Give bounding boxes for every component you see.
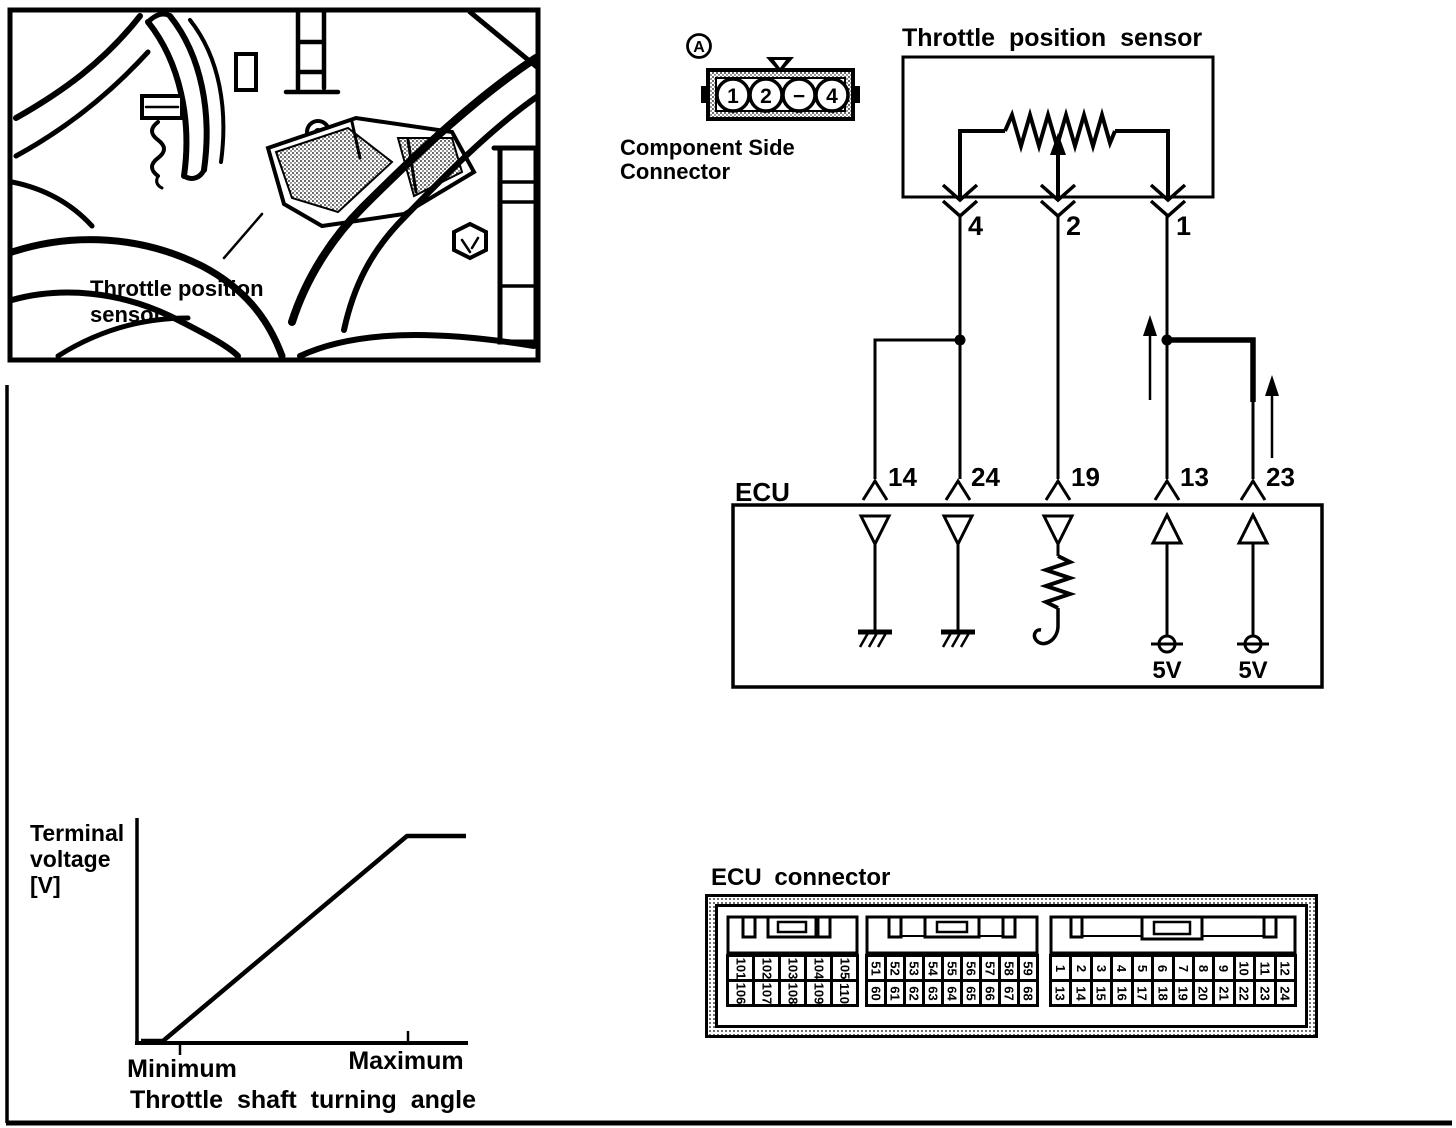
- sensor-schematic: Throttle position sensor 4 2 1: [902, 24, 1213, 241]
- ecu-box: [733, 505, 1322, 687]
- ecu-pin-23: 23: [1266, 462, 1295, 492]
- ecu-label: ECU: [735, 477, 790, 507]
- ecu-connector-inner: 101102103104105 106107108109110 51525354…: [715, 904, 1308, 1028]
- ecu-connector-title: ECU connector: [711, 864, 890, 892]
- internal-resistor: [1046, 556, 1070, 608]
- sensor-pin-4: 4: [968, 211, 983, 241]
- flow-arrow-icon-1: [1143, 315, 1157, 336]
- block-1-bottom-row: 106107108109110: [726, 979, 859, 1007]
- ecu-pin-19: 19: [1071, 462, 1100, 492]
- junction-dot-right: [1162, 335, 1173, 346]
- ecu-connector-pin-68: 68: [1017, 979, 1039, 1007]
- ecu-connector-pin-103: 103: [778, 954, 807, 982]
- ecu-connector-pin-24: 24: [1274, 979, 1297, 1007]
- ecu-pin-13: 13: [1180, 462, 1209, 492]
- photo-caption-line1: Throttle position: [90, 276, 264, 301]
- ecu-pin-24: 24: [971, 462, 1000, 492]
- y-label-line1: Terminal: [30, 820, 124, 846]
- x-tick-label-maximum: Maximum: [348, 1047, 463, 1075]
- ecu-io-triangles: [861, 515, 1267, 544]
- ecu-connector-pin-104: 104: [804, 954, 833, 982]
- input-triangle-19: [1044, 516, 1072, 544]
- ecu-connector-pin-108: 108: [778, 979, 807, 1007]
- pin-2: 2: [760, 85, 772, 108]
- block-2-bottom-row: 606162636465666768: [865, 979, 1039, 1007]
- block-3-bottom-row: 131415161718192021222324: [1049, 979, 1297, 1007]
- component-connector: A 1 2 − 4 Component Side Connector: [620, 35, 860, 185]
- pin-dash: −: [793, 85, 805, 108]
- sensor-pin-labels: 4 2 1: [968, 211, 1191, 241]
- ecu-connector-frame: 101102103104105 106107108109110 51525354…: [705, 894, 1318, 1038]
- ecu-connector-pin-59: 59: [1017, 954, 1039, 982]
- x-axis-title: Throttle shaft turning angle: [130, 1086, 476, 1114]
- ground-icon-14: [860, 633, 886, 647]
- x-tick-label-minimum: Minimum: [127, 1055, 237, 1083]
- block-1-top-row: 101102103104105: [726, 954, 859, 982]
- input-triangle-14: [861, 516, 889, 544]
- block-3-top-row: 123456789101112: [1049, 954, 1297, 982]
- ecu-connector-pin-102: 102: [752, 954, 781, 982]
- thick-branch: [1167, 340, 1253, 402]
- block-2-top-row: 515253545556575859: [865, 954, 1039, 982]
- supply-label-13: 5V: [1152, 657, 1181, 684]
- supply-label-23: 5V: [1238, 657, 1267, 684]
- block-1-housing: [726, 914, 859, 954]
- ecu-connector-pin-106: 106: [726, 979, 755, 1007]
- output-triangle-13: [1153, 515, 1181, 543]
- component-caption-line1: Component Side: [620, 135, 795, 160]
- flow-arrow-icon-2: [1265, 375, 1279, 396]
- ecu-connector-block-3: 123456789101112 131415161718192021222324: [1049, 914, 1297, 1007]
- block-2-housing: [865, 914, 1039, 954]
- ecu-connector-block-1: 101102103104105 106107108109110: [726, 914, 859, 1007]
- ground-icon-24: [943, 633, 969, 647]
- y-label-line3: [V]: [30, 872, 61, 898]
- ecu-connector-pin-107: 107: [752, 979, 781, 1007]
- hook-ground-icon: [1034, 608, 1058, 644]
- photo-caption-line2: sensor: [90, 302, 163, 327]
- ecu-pin-14: 14: [888, 462, 917, 492]
- sensor-pin-2: 2: [1066, 211, 1081, 241]
- input-triangle-24: [944, 516, 972, 544]
- ecu-connector-figure: ECU connector 101102103104105 1061071081…: [705, 862, 1321, 1042]
- y-label-line2: voltage: [30, 846, 111, 872]
- voltage-curve: [141, 836, 466, 1041]
- harness-wires: [875, 216, 1279, 479]
- ecu-connector-pin-12: 12: [1274, 954, 1297, 982]
- engine-illustration: Throttle position sensor: [10, 10, 542, 360]
- ecu-connector-pin-105: 105: [830, 954, 859, 982]
- pin-1: 1: [727, 85, 739, 108]
- sensor-pin-1: 1: [1176, 211, 1191, 241]
- ecu-pin-labels: 14 24 19 13 23: [888, 462, 1295, 492]
- junction-dot-left: [955, 335, 966, 346]
- ecu-schematic: ECU 14 24 19 13 23: [733, 462, 1322, 687]
- block-3-housing: [1049, 914, 1297, 954]
- component-caption-line2: Connector: [620, 159, 730, 184]
- ecu-connector-pin-101: 101: [726, 954, 755, 982]
- ecu-connector-pin-110: 110: [830, 979, 859, 1007]
- ecu-connector-block-2: 515253545556575859 606162636465666768: [865, 914, 1039, 1007]
- manual-page: Throttle position sensor A 1 2 − 4 Compo…: [0, 0, 1456, 1128]
- ref-label: A: [693, 39, 705, 56]
- pin-4: 4: [826, 85, 838, 108]
- potentiometer: [960, 115, 1168, 197]
- sensor-title: Throttle position sensor: [902, 24, 1202, 52]
- ecu-internal-wires: [858, 543, 1269, 652]
- voltage-angle-graph: Terminal voltage [V] Minimum Maximum Thr…: [30, 818, 476, 1114]
- ecu-connector-pin-109: 109: [804, 979, 833, 1007]
- output-triangle-23: [1239, 515, 1267, 543]
